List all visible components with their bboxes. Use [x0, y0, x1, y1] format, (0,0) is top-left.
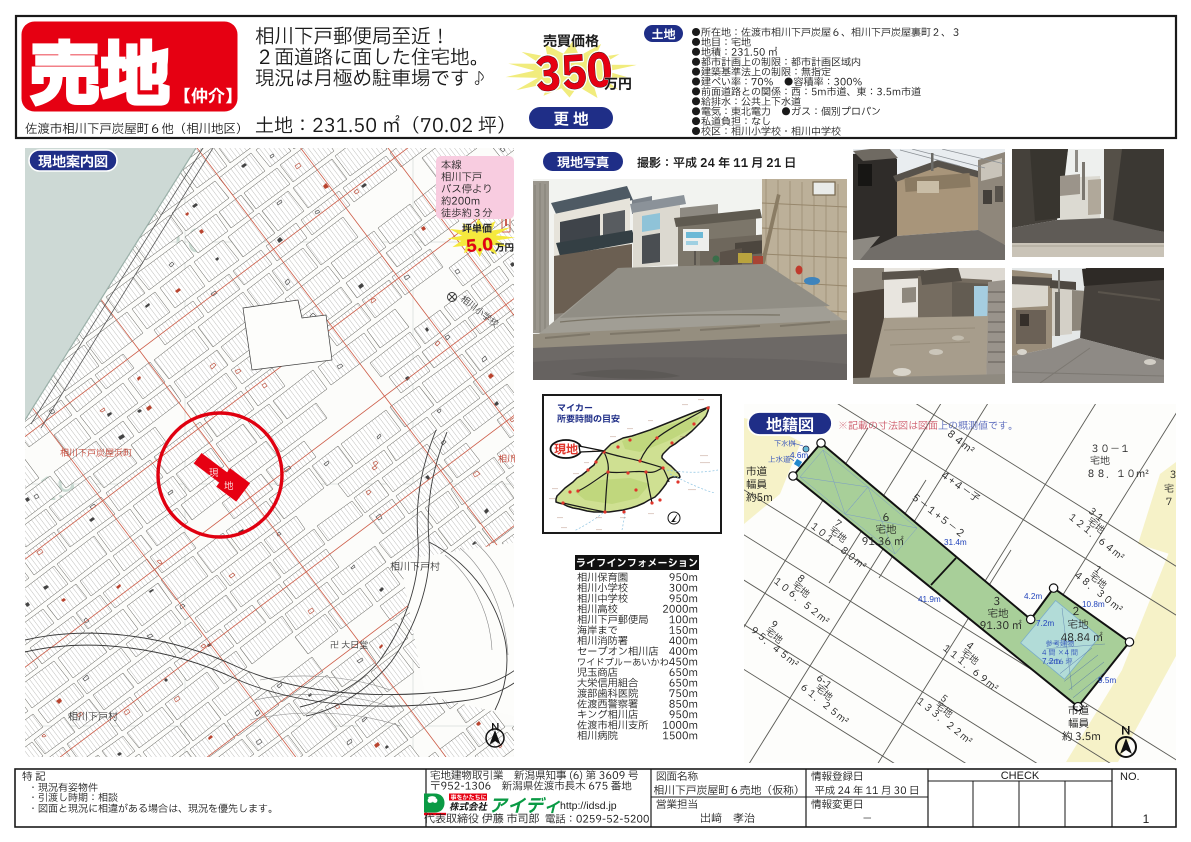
svg-text:NO.: NO. [1120, 771, 1140, 783]
svg-text:1: 1 [1143, 812, 1150, 826]
svg-text:CHECK: CHECK [1001, 770, 1040, 782]
svg-text:4.2m: 4.2m [1024, 592, 1042, 601]
svg-text:http://idsd.jp: http://idsd.jp [560, 800, 617, 812]
svg-text:7.2m: 7.2m [1042, 657, 1060, 666]
svg-text:7.2m: 7.2m [1036, 619, 1054, 628]
svg-text:31.4m: 31.4m [944, 538, 967, 547]
svg-text:10.8m: 10.8m [1082, 600, 1105, 609]
svg-text:9.5m: 9.5m [1098, 676, 1116, 685]
svg-text:41.9m: 41.9m [918, 595, 941, 604]
